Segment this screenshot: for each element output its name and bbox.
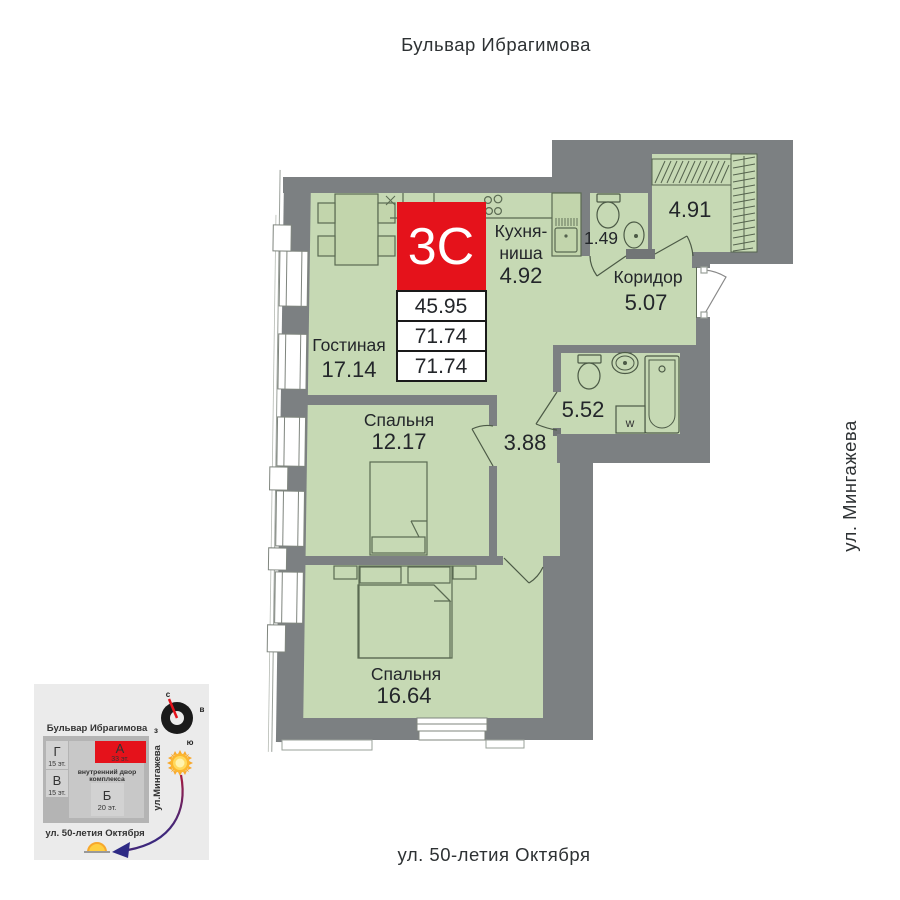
svg-text:Кухня-: Кухня- — [495, 221, 548, 241]
svg-text:15 эт.: 15 эт. — [48, 761, 66, 768]
svg-text:5.07: 5.07 — [625, 290, 668, 315]
svg-text:внутренний двор: внутренний двор — [78, 768, 137, 776]
svg-text:комплекса: комплекса — [89, 776, 125, 783]
svg-text:33 эт.: 33 эт. — [111, 756, 129, 763]
svg-text:ю: ю — [187, 738, 194, 747]
svg-text:w: w — [625, 416, 635, 430]
svg-text:ул. 50-летия Октября: ул. 50-летия Октября — [45, 828, 144, 839]
svg-text:Спальня: Спальня — [371, 664, 441, 684]
svg-text:ул. Мингажева: ул. Мингажева — [839, 420, 860, 552]
svg-text:16.64: 16.64 — [376, 683, 431, 708]
svg-text:ул. 50-летия Октября: ул. 50-летия Октября — [398, 844, 591, 865]
svg-text:45.95: 45.95 — [415, 295, 468, 318]
svg-text:71.74: 71.74 — [415, 325, 468, 348]
svg-text:3С: 3С — [408, 218, 474, 276]
svg-text:4.91: 4.91 — [669, 197, 712, 222]
svg-text:Б: Б — [103, 788, 112, 803]
svg-text:Коридор: Коридор — [613, 267, 682, 287]
svg-text:20 эт.: 20 эт. — [98, 803, 117, 812]
svg-text:Бульвар Ибрагимова: Бульвар Ибрагимова — [47, 723, 148, 734]
svg-text:12.17: 12.17 — [371, 429, 426, 454]
svg-text:Спальня: Спальня — [364, 410, 434, 430]
svg-text:ул.Мингажева: ул.Мингажева — [152, 745, 163, 811]
svg-text:Бульвар Ибрагимова: Бульвар Ибрагимова — [401, 34, 591, 55]
svg-text:Гостиная: Гостиная — [312, 335, 385, 355]
svg-text:В: В — [53, 773, 62, 788]
svg-text:4.92: 4.92 — [500, 263, 543, 288]
svg-text:15 эт.: 15 эт. — [48, 790, 66, 797]
svg-text:ниша: ниша — [499, 243, 542, 263]
svg-text:3.88: 3.88 — [504, 430, 547, 455]
svg-text:71.74: 71.74 — [415, 355, 468, 378]
svg-text:1.49: 1.49 — [584, 228, 618, 248]
svg-text:17.14: 17.14 — [321, 357, 376, 382]
svg-text:Г: Г — [53, 744, 60, 759]
svg-text:з: з — [154, 726, 158, 735]
svg-text:с: с — [166, 690, 171, 699]
svg-text:5.52: 5.52 — [562, 397, 605, 422]
svg-text:в: в — [200, 705, 205, 714]
svg-text:А: А — [116, 741, 125, 756]
